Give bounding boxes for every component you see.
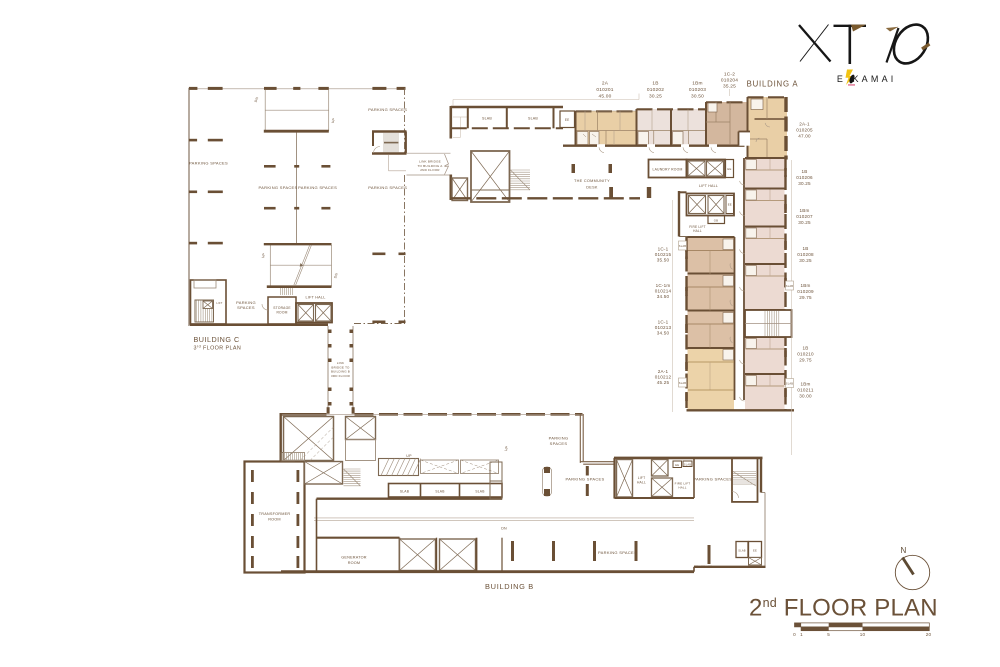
svg-text:010204: 010204: [721, 77, 738, 83]
svg-text:UP: UP: [406, 454, 412, 458]
svg-text:LIFT: LIFT: [216, 301, 222, 305]
svg-text:EE: EE: [753, 549, 757, 553]
svg-text:5: 5: [827, 632, 830, 637]
svg-text:30.25: 30.25: [649, 94, 662, 100]
svg-text:010207: 010207: [796, 214, 813, 219]
svg-text:PARKING SPACES: PARKING SPACES: [298, 185, 337, 190]
svg-text:0: 0: [793, 632, 796, 637]
svg-text:PARKING: PARKING: [549, 436, 569, 441]
svg-text:BUILDING B: BUILDING B: [485, 582, 534, 591]
svg-text:29.75: 29.75: [799, 358, 812, 363]
svg-text:010201: 010201: [596, 87, 613, 93]
svg-text:1Bm: 1Bm: [800, 382, 810, 387]
svg-text:30.25: 30.25: [799, 258, 812, 263]
svg-text:1C-2: 1C-2: [724, 71, 735, 77]
svg-text:EE: EE: [565, 118, 570, 122]
svg-text:35.25: 35.25: [723, 84, 736, 90]
svg-text:SLAB: SLAB: [482, 117, 492, 121]
svg-text:2ND FLOOR: 2ND FLOOR: [420, 168, 440, 172]
svg-text:PARKING SPACES: PARKING SPACES: [693, 477, 732, 482]
svg-text:30.25: 30.25: [798, 220, 811, 225]
svg-text:10: 10: [860, 632, 866, 637]
svg-text:EE: EE: [727, 167, 731, 171]
svg-text:2nd FLOOR PLAN: 2nd FLOOR PLAN: [749, 595, 938, 622]
svg-text:1B: 1B: [802, 246, 808, 251]
svg-text:BUILDING A: BUILDING A: [747, 80, 799, 89]
svg-text:THE COMMUNITY: THE COMMUNITY: [574, 179, 610, 183]
svg-text:010203: 010203: [689, 87, 706, 93]
svg-text:010205: 010205: [796, 128, 813, 133]
svg-text:SLAB: SLAB: [400, 490, 410, 494]
svg-text:PARKING SPACES: PARKING SPACES: [259, 185, 298, 190]
svg-text:1B: 1B: [802, 346, 808, 351]
svg-text:010213: 010213: [655, 325, 672, 330]
svg-text:GB: GB: [714, 219, 718, 223]
svg-text:1Bm: 1Bm: [800, 283, 810, 288]
svg-text:HALL: HALL: [678, 486, 686, 490]
svg-text:LIFT HALL: LIFT HALL: [305, 296, 325, 300]
svg-text:010212: 010212: [655, 375, 672, 380]
svg-text:LIFT: LIFT: [638, 476, 646, 480]
svg-text:KAMAI: KAMAI: [852, 74, 896, 84]
svg-text:010206: 010206: [796, 175, 813, 180]
svg-text:EE: EE: [728, 203, 732, 207]
svg-text:010202: 010202: [647, 87, 664, 93]
svg-text:SLAB: SLAB: [679, 244, 687, 248]
svg-text:N: N: [901, 546, 907, 555]
svg-text:SLAB: SLAB: [528, 117, 538, 121]
svg-text:34.50: 34.50: [657, 294, 670, 299]
svg-text:30.00: 30.00: [799, 394, 812, 399]
svg-text:DN: DN: [501, 527, 507, 531]
svg-text:010214: 010214: [655, 289, 672, 294]
svg-text:ROOM: ROOM: [348, 561, 361, 565]
svg-text:BUILDING C: BUILDING C: [194, 335, 240, 344]
svg-text:45.00: 45.00: [598, 94, 611, 100]
svg-text:SLAB: SLAB: [684, 463, 692, 467]
svg-text:47.00: 47.00: [798, 134, 811, 139]
svg-text:PARKING SPACES: PARKING SPACES: [368, 185, 407, 190]
svg-text:EE: EE: [675, 463, 679, 467]
svg-text:29.75: 29.75: [799, 295, 812, 300]
svg-text:ROOM: ROOM: [276, 311, 287, 315]
svg-text:HALL: HALL: [637, 481, 646, 485]
svg-text:SLAB: SLAB: [679, 381, 687, 385]
svg-text:DESK: DESK: [586, 186, 598, 190]
svg-text:SLAB: SLAB: [475, 490, 485, 494]
svg-text:010210: 010210: [797, 352, 814, 357]
svg-text:1: 1: [800, 632, 803, 637]
svg-text:SLAB: SLAB: [786, 382, 794, 386]
svg-text:SLAB: SLAB: [738, 549, 746, 553]
svg-text:STORAGE: STORAGE: [273, 306, 291, 310]
svg-text:010209: 010209: [797, 289, 814, 294]
svg-text:3rd FLOOR PLAN: 3rd FLOOR PLAN: [194, 345, 242, 352]
svg-text:2A: 2A: [602, 80, 609, 86]
svg-text:E: E: [837, 74, 843, 84]
svg-text:1C-1m: 1C-1m: [656, 283, 671, 288]
svg-text:010215: 010215: [655, 252, 672, 257]
svg-text:1Bm: 1Bm: [799, 208, 809, 213]
svg-text:010211: 010211: [797, 388, 813, 393]
svg-text:HALL: HALL: [693, 229, 702, 233]
svg-text:2A-1: 2A-1: [799, 122, 810, 127]
svg-text:LIFT HALL: LIFT HALL: [699, 184, 718, 188]
svg-text:SPACES: SPACES: [237, 305, 255, 310]
svg-text:35.50: 35.50: [657, 258, 670, 263]
svg-text:20: 20: [926, 632, 932, 637]
svg-text:2A-1: 2A-1: [658, 369, 669, 374]
svg-text:1C-1: 1C-1: [658, 247, 669, 252]
svg-text:1C-1: 1C-1: [658, 320, 669, 325]
svg-text:GENERATOR: GENERATOR: [341, 556, 367, 560]
svg-text:34.50: 34.50: [657, 331, 670, 336]
svg-text:SPACES: SPACES: [550, 441, 568, 446]
svg-text:1B: 1B: [801, 169, 807, 174]
svg-text:45.25: 45.25: [657, 380, 670, 385]
svg-text:LAUNDRY ROOM: LAUNDRY ROOM: [653, 168, 683, 172]
svg-text:1B: 1B: [652, 80, 658, 86]
svg-text:PARKING SPACES: PARKING SPACES: [368, 107, 407, 112]
svg-text:TRANSFORMER: TRANSFORMER: [259, 512, 291, 516]
svg-text:010208: 010208: [797, 252, 814, 257]
svg-text:PARKING SPACES: PARKING SPACES: [189, 161, 228, 166]
svg-text:SLAB: SLAB: [435, 490, 445, 494]
svg-text:1Bm: 1Bm: [692, 80, 702, 86]
svg-text:30.50: 30.50: [691, 94, 704, 100]
svg-text:SLAB: SLAB: [786, 284, 794, 288]
svg-text:30.25: 30.25: [798, 181, 811, 186]
svg-text:ROOM: ROOM: [268, 518, 281, 522]
svg-text:3RD FLOOR: 3RD FLOOR: [331, 374, 351, 378]
svg-text:PARKING SPACES: PARKING SPACES: [598, 550, 637, 555]
svg-text:PARKING SPACES: PARKING SPACES: [566, 477, 605, 482]
